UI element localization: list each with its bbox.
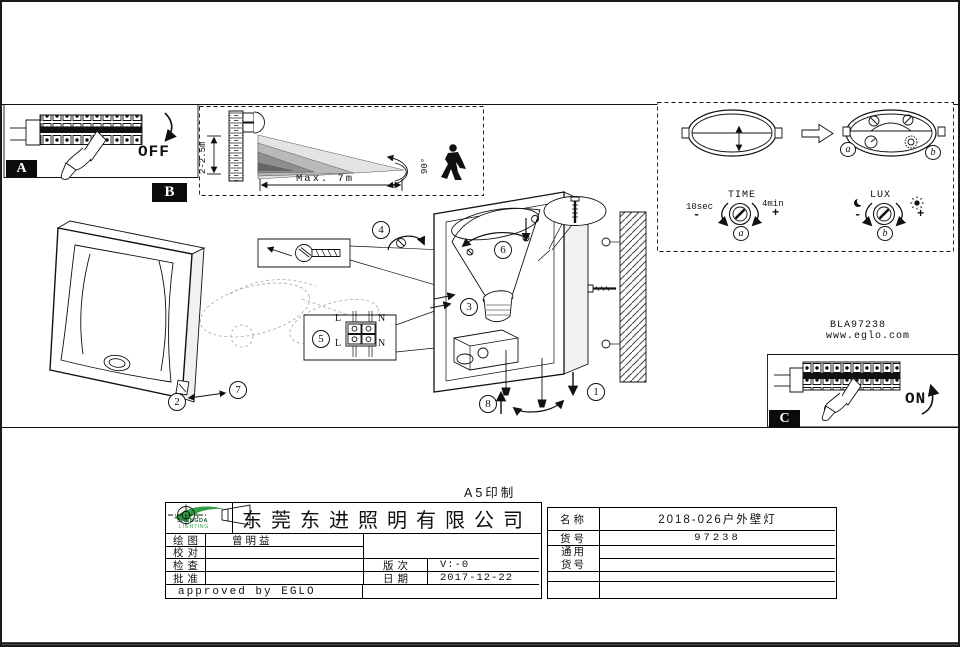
- part-callout: 4: [372, 221, 390, 239]
- model-ref: BLA97238: [830, 320, 886, 331]
- part-callout: 8: [479, 395, 497, 413]
- time-title: TIME: [728, 190, 756, 201]
- wire-label: N: [378, 338, 385, 349]
- wall: [620, 212, 646, 382]
- part-callout: 3: [460, 298, 478, 316]
- lux-plus: +: [917, 207, 924, 221]
- item-label: 货号: [548, 531, 600, 546]
- empty-cell: [600, 582, 835, 598]
- product-name: 2018-026户外壁灯: [600, 508, 835, 531]
- off-text: OFF: [138, 143, 170, 161]
- wire-label: N: [378, 313, 385, 324]
- date-value: 2017-12-22: [428, 572, 539, 585]
- title-block-right: 名称 2018-026户外壁灯 货号 97238 通用货号: [547, 507, 837, 599]
- front-cover: [50, 221, 204, 402]
- common-item-label: 通用货号: [548, 546, 600, 572]
- empty-cell: [600, 546, 835, 559]
- part-callout: 5: [312, 330, 330, 348]
- lux-title: LUX: [870, 190, 891, 201]
- instruction-sheet: A B C OFF ON 2-2.5m Max. 7m 90° TIME 10s…: [0, 0, 960, 647]
- time-minus: -: [693, 208, 700, 222]
- dial-b-callout: b: [925, 145, 941, 160]
- row-value: [206, 547, 364, 559]
- website-ref: www.eglo.com: [826, 331, 910, 342]
- panel-a-label: A: [6, 160, 37, 177]
- row-label: 检查: [166, 559, 206, 572]
- approved-by: approved by EGLO: [166, 585, 363, 599]
- revision-value: V:-0: [428, 559, 539, 572]
- lux-minus: -: [854, 208, 861, 222]
- angle-dim: 90°: [420, 158, 430, 174]
- wire-label: L: [335, 338, 341, 349]
- wire-label: L: [335, 313, 341, 324]
- part-callout: 1: [587, 383, 605, 401]
- time-plus: +: [772, 206, 779, 220]
- row-label: 校对: [166, 547, 206, 559]
- empty-cell: [600, 572, 835, 582]
- panel-c-label: C: [769, 410, 800, 427]
- company-name: 东莞东进照明有限公司: [242, 504, 532, 533]
- row-value: [206, 559, 364, 572]
- dial-b-callout: b: [877, 226, 893, 241]
- part-callout: 2: [168, 393, 186, 411]
- part-callout: 6: [494, 241, 512, 259]
- row-label: 批准: [166, 572, 206, 585]
- name-label: 名称: [548, 508, 600, 531]
- exploded-view: [50, 192, 646, 414]
- panel-b-label: B: [152, 183, 187, 202]
- row-value: [206, 572, 364, 585]
- item-number: 97238: [600, 531, 835, 546]
- revision-label: 版次: [364, 559, 428, 572]
- range-dim: Max. 7m: [296, 173, 354, 185]
- empty-cell: [600, 559, 835, 572]
- mount-height-dim: 2-2.5m: [198, 142, 208, 174]
- on-text: ON: [905, 390, 926, 408]
- empty-cell: [548, 572, 600, 582]
- sensor-dial-panel-box: [658, 103, 954, 252]
- print-note: A5印制: [464, 482, 516, 501]
- dial-a-callout: a: [840, 142, 856, 157]
- date-label: 日期: [364, 572, 428, 585]
- empty-cell: [548, 582, 600, 598]
- part-callout: 7: [229, 381, 247, 399]
- dial-a-callout: a: [733, 226, 749, 241]
- title-block-left: SHENGDA LIGHTING 东莞东进照明有限公司 绘图 曾明益: [165, 502, 542, 599]
- projection-symbol: [364, 534, 539, 559]
- row-label: 绘图: [166, 534, 206, 547]
- row-value: 曾明益: [206, 534, 364, 547]
